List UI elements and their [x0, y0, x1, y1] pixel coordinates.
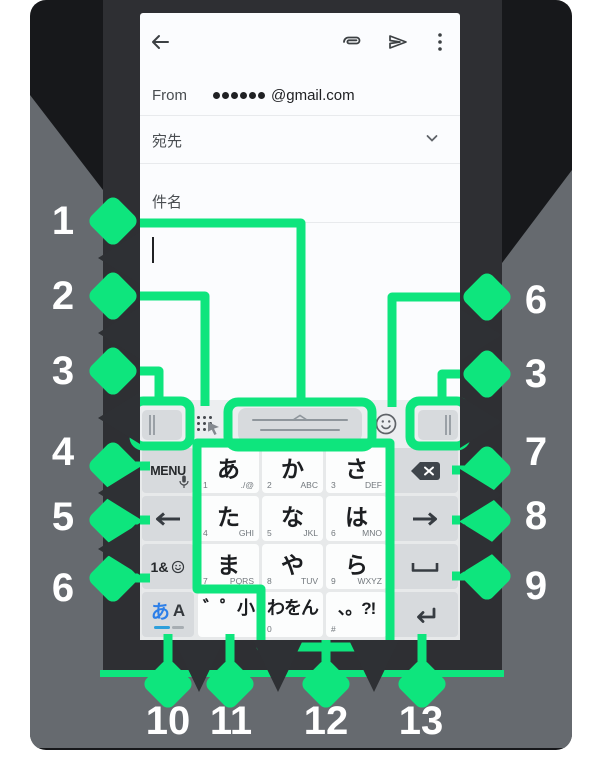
callout-number-6-right: 6: [506, 280, 566, 320]
back-arrow-icon[interactable]: [148, 30, 172, 54]
from-row: From @gmail.com: [152, 87, 355, 103]
callout-number-2: 2: [33, 276, 93, 316]
callout-number-7: 7: [506, 432, 566, 472]
callout-number-10: 10: [138, 701, 198, 741]
candidate-handle-bar[interactable]: [238, 408, 362, 442]
left-edge-handle-icon[interactable]: [142, 410, 182, 440]
callout-number-6-left: 6: [33, 568, 93, 608]
key-enter[interactable]: [391, 592, 458, 637]
key-ya[interactable]: や 8 TUV: [262, 544, 323, 589]
callout-number-1: 1: [33, 201, 93, 241]
hand-pointer-icon: [206, 420, 222, 436]
key-na[interactable]: な 5 JKL: [262, 496, 323, 541]
right-edge-handle-icon[interactable]: [418, 410, 458, 440]
keyboard: MENU あ 1 ./@ か 2 ABC さ 3 DEF: [140, 400, 460, 640]
tutorial-page: 1 2 3 4 5 6 6 3 7 8 9 10 11 12 13: [0, 0, 600, 780]
key-ka[interactable]: か 2 ABC: [262, 448, 323, 493]
attach-paperclip-icon[interactable]: [340, 30, 364, 54]
overflow-menu-icon[interactable]: [430, 31, 450, 53]
callout-number-13: 13: [391, 701, 451, 741]
arrow-left-icon: [142, 496, 194, 541]
chevron-down-icon[interactable]: [426, 134, 438, 143]
key-input-mode[interactable]: あ A: [142, 592, 194, 637]
phone-screen: From @gmail.com 宛先 件名: [140, 13, 460, 640]
callout-number-12: 12: [296, 701, 356, 741]
key-space[interactable]: [391, 544, 458, 589]
space-icon: [391, 544, 458, 589]
mode-indicator-active: [154, 626, 170, 630]
key-ta[interactable]: た 4 GHI: [198, 496, 259, 541]
divider: [140, 163, 460, 164]
masked-address-dots: [213, 86, 267, 104]
keyboard-toolbar: [140, 400, 460, 448]
mic-icon: [179, 475, 189, 489]
arrow-right-icon: [391, 496, 458, 541]
callout-number-11: 11: [201, 701, 261, 741]
send-icon[interactable]: [386, 30, 410, 54]
callout-number-4: 4: [33, 432, 93, 472]
key-punctuation[interactable]: 、。?! #: [326, 592, 387, 637]
callout-number-8: 8: [506, 496, 566, 536]
emoji-smiley-icon[interactable]: [374, 412, 398, 436]
text-cursor[interactable]: [152, 237, 154, 263]
cursor-grip-icon[interactable]: [197, 416, 225, 436]
divider: [140, 115, 460, 116]
backspace-icon: [391, 448, 458, 493]
callout-number-9: 9: [506, 566, 566, 606]
key-num-emoji[interactable]: 1&: [142, 544, 194, 589]
key-dakuten-small[interactable]: ゛゜小: [198, 592, 259, 637]
from-email-domain: @gmail.com: [271, 87, 355, 104]
key-cursor-right[interactable]: [391, 496, 458, 541]
callout-number-3-right: 3: [506, 354, 566, 394]
key-backspace[interactable]: [391, 448, 458, 493]
to-field[interactable]: 宛先: [152, 130, 182, 151]
key-ha[interactable]: は 6 MNO: [326, 496, 387, 541]
key-ra[interactable]: ら 9 WXYZ: [326, 544, 387, 589]
from-label: From: [152, 87, 187, 104]
mode-indicator-inactive: [172, 626, 184, 630]
smiley-icon: [171, 560, 185, 574]
key-wa[interactable]: わをん 0: [262, 592, 323, 637]
callout-number-5: 5: [33, 497, 93, 537]
key-sa[interactable]: さ 3 DEF: [326, 448, 387, 493]
key-a[interactable]: あ 1 ./@: [198, 448, 259, 493]
callout-number-3-left: 3: [33, 351, 93, 391]
pull-handle-icon: [292, 414, 308, 421]
divider: [140, 222, 460, 223]
subject-field[interactable]: 件名: [152, 191, 182, 212]
key-menu[interactable]: MENU: [142, 448, 194, 493]
key-cursor-left[interactable]: [142, 496, 194, 541]
key-ma[interactable]: ま 7 PQRS: [198, 544, 259, 589]
enter-icon: [391, 592, 458, 637]
